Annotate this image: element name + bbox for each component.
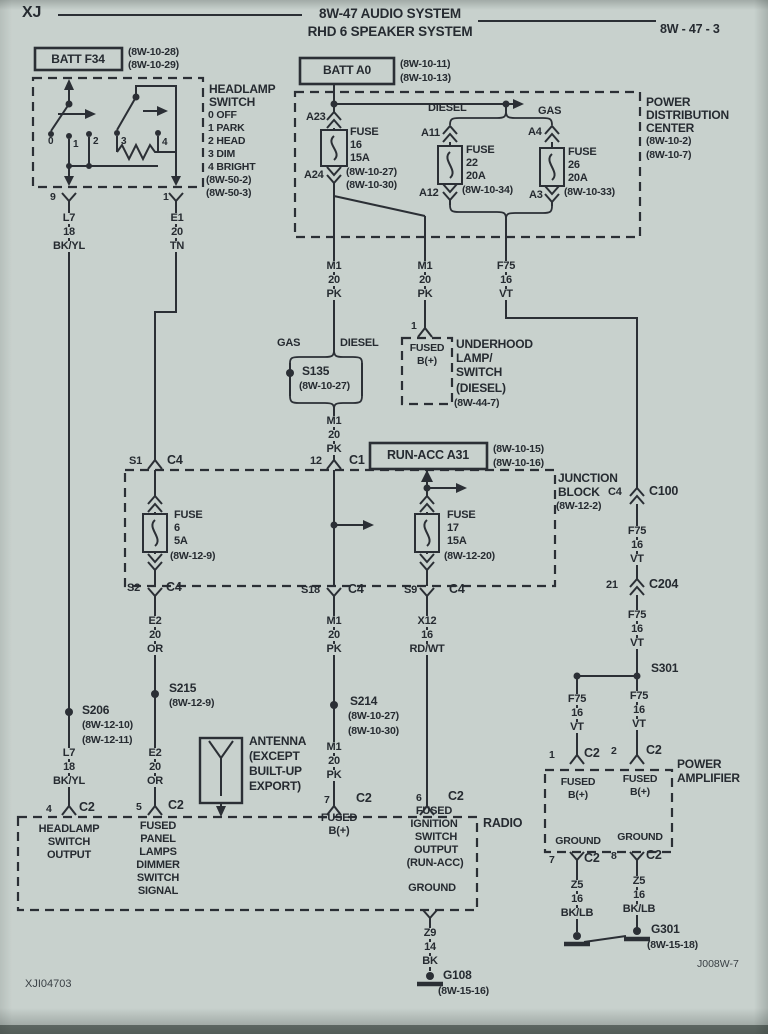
label-0: 0 [48,137,53,147]
label-1: 1 [549,750,555,761]
label-m1: M1 [324,416,345,427]
label-power: POWER [677,758,721,770]
label-20a: 20A [568,173,588,184]
label-s9: S9 [404,585,417,596]
label-8w-10-11: (8W-10-11) [400,59,450,70]
label-center: CENTER [646,122,694,134]
label-fused: FUSED [623,774,658,785]
label-b: B(+) [329,826,350,837]
label-vt: VT [629,719,649,730]
label-20: 20 [325,430,343,441]
label-vt: VT [567,722,587,733]
label-vt: VT [627,638,647,649]
label-fuse: FUSE [174,510,203,521]
junction-block-wires [155,469,457,586]
label-8w-15-16: (8W-15-16) [438,986,489,997]
label-pk: PK [324,289,345,300]
figure-id: XJI04703 [25,978,71,990]
label-16: 16 [628,624,646,635]
label-f75: F75 [625,610,649,621]
label-x12: X12 [415,616,440,627]
label-ignition: IGNITION [410,819,457,830]
label-c204: C204 [649,578,678,591]
label-output: OUTPUT [47,850,91,861]
label-output: OUTPUT [414,845,458,856]
label-s215: S215 [169,682,196,694]
label-16: 16 [630,705,648,716]
label-20: 20 [325,756,343,767]
label-9: 9 [50,192,56,203]
label-ground: GROUND [408,883,456,894]
label-16: 16 [350,140,362,151]
label-ground: GROUND [617,832,662,843]
label-20: 20 [416,275,434,286]
label-8w-10-13: (8W-10-13) [400,73,451,84]
label-8w-12-10: (8W-12-10) [82,720,133,731]
label-or: OR [144,644,166,655]
label-c1: C1 [349,454,365,467]
label-8w-10-30: (8W-10-30) [348,726,399,737]
label-c4: C4 [348,583,364,596]
label-8w-12-11: (8W-12-11) [82,735,132,746]
label-headlamp: HEADLAMP [209,83,275,95]
label-c4: C4 [449,583,465,596]
label-b: B(+) [630,787,650,798]
label-s1: S1 [129,456,142,467]
label-m1: M1 [324,742,345,753]
label-vt: VT [496,289,516,300]
label-panel: PANEL [140,834,175,845]
label-8w-10-15: (8W-10-15) [493,444,544,455]
label-junction: JUNCTION [558,472,618,484]
label-m1: M1 [324,261,345,272]
label-fuse: FUSE [447,510,476,521]
page-subtitle: RHD 6 SPEAKER SYSTEM [308,24,473,39]
label-s2: S2 [127,583,140,594]
label-20: 20 [146,630,164,641]
label-7: 7 [324,795,330,806]
label-0-off: 0 OFF [208,110,237,121]
label-c2: C2 [79,801,95,814]
label-a12: A12 [419,188,439,199]
label-pk: PK [324,444,345,455]
label-signal: SIGNAL [138,886,178,897]
label-26: 26 [568,160,580,171]
label-batt-f34: BATT F34 [51,53,105,65]
label-headlamp: HEADLAMP [39,824,100,835]
label-switch: SWITCH [209,96,255,108]
label-run-acc: (RUN-ACC) [407,858,464,869]
label-z5: Z5 [630,876,648,887]
label-pk: PK [415,289,436,300]
label-20: 20 [146,762,164,773]
label-except: (EXCEPT [249,750,300,762]
label-8w-10-7: (8W-10-7) [646,150,691,161]
label-3: 3 [121,137,126,147]
label-20: 20 [325,630,343,641]
label-2-head: 2 HEAD [208,136,245,147]
label-21: 21 [606,580,618,591]
label-gas: GAS [277,338,300,349]
label-8w-12-2: (8W-12-2) [556,501,601,512]
label-diesel: DIESEL [428,103,467,114]
label-dimmer: DIMMER [136,860,179,871]
label-switch: SWITCH [137,873,179,884]
label-built-up: BUILT-UP [249,765,302,777]
page-number: 8W - 47 - 3 [660,22,720,36]
label-8w-10-33: (8W-10-33) [564,187,615,198]
label-radio: RADIO [483,817,522,830]
label-bk: BK [419,956,441,967]
label-5a: 5A [174,536,188,547]
splice-s215-dot [151,690,159,698]
label-fuse: FUSE [568,147,597,158]
label-underhood: UNDERHOOD [456,338,533,350]
label-20: 20 [168,227,186,238]
label-c4: C4 [608,487,622,498]
label-pk: PK [324,644,345,655]
label-f75: F75 [627,691,651,702]
label-s214: S214 [350,695,377,707]
label-8w-10-27: (8W-10-27) [348,711,399,722]
label-7: 7 [549,855,555,866]
label-f75: F75 [565,694,589,705]
label-c2: C2 [646,744,662,757]
label-4-bright: 4 BRIGHT [208,162,255,173]
label-z5: Z5 [568,880,586,891]
label-8w-50-2: (8W-50-2) [206,175,251,186]
label-diesel: DIESEL [340,338,379,349]
label-switch: SWITCH [456,366,502,378]
label-8w-10-28: (8W-10-28) [128,47,179,58]
label-16: 16 [628,540,646,551]
label-20a: 20A [466,171,486,182]
label-switch: SWITCH [415,832,457,843]
label-fused: FUSED [561,777,596,788]
label-antenna: ANTENNA [249,735,306,747]
label-8w-10-34: (8W-10-34) [462,185,513,196]
splice-s301-dot [634,673,641,680]
label-lamp: LAMP/ [456,352,492,364]
label-gas: GAS [538,106,561,117]
splice-s135-dot [286,369,294,377]
label-16: 16 [418,630,436,641]
label-15a: 15A [350,153,370,164]
label-1: 1 [411,321,417,332]
label-s135: S135 [302,365,329,377]
label-c2: C2 [448,790,464,803]
label-a11: A11 [421,128,440,139]
label-16: 16 [568,894,586,905]
label-8w-15-18: (8W-15-18) [647,940,698,951]
label-4: 4 [46,804,52,815]
label-8w-10-29: (8W-10-29) [128,60,179,71]
label-22: 22 [466,158,478,169]
label-3-dim: 3 DIM [208,149,235,160]
label-c2: C2 [168,799,184,812]
label-8w-10-27: (8W-10-27) [346,167,397,178]
label-14: 14 [421,942,439,953]
label-8w-10-27: (8W-10-27) [299,381,350,392]
model-code: XJ [22,4,41,22]
label-fused: FUSED [410,343,445,354]
label-a3: A3 [529,190,543,201]
label-6: 6 [416,793,422,804]
label-f75: F75 [625,526,649,537]
label-e2: E2 [145,748,164,759]
label-diesel: (DIESEL) [456,382,506,394]
label-vt: VT [627,554,647,565]
label-8w-12-9: (8W-12-9) [169,698,214,709]
label-8w-12-9: (8W-12-9) [170,551,215,562]
label-export: EXPORT) [249,780,301,792]
label-c2: C2 [584,747,600,760]
label-8w-10-16: (8W-10-16) [493,458,544,469]
label-distribution: DISTRIBUTION [646,109,729,121]
label-8w-10-30: (8W-10-30) [346,180,397,191]
label-18: 18 [60,227,78,238]
label-rd-wt: RD/WT [406,644,447,655]
label-fused: FUSED [416,806,452,817]
label-b: B(+) [417,356,437,367]
label-or: OR [144,776,166,787]
label-2: 2 [611,746,617,757]
label-8w-44-7: (8W-44-7) [454,398,499,409]
label-fuse: FUSE [350,127,379,138]
splice-s214-dot [330,701,338,709]
label-c2: C2 [646,849,662,862]
label-l7: L7 [60,748,78,759]
label-c2: C2 [584,852,600,865]
label-8w-10-2: (8W-10-2) [646,136,691,147]
label-lamps: LAMPS [139,847,177,858]
label-fuse: FUSE [466,145,495,156]
label-12: 12 [310,456,322,467]
label-8: 8 [611,851,617,862]
label-s301: S301 [651,662,678,674]
drawing-id: J008W-7 [697,958,739,970]
label-amplifier: AMPLIFIER [677,772,740,784]
label-4: 4 [162,138,167,148]
label-18: 18 [60,762,78,773]
label-6: 6 [174,523,180,534]
photo-edge [0,1025,768,1034]
label-1-park: 1 PARK [208,123,245,134]
label-ground: GROUND [555,836,600,847]
label-16: 16 [497,275,515,286]
label-1: 1 [73,140,78,150]
label-16: 16 [630,890,648,901]
label-g301: G301 [651,923,680,935]
label-z9: Z9 [421,928,439,939]
label-fused: FUSED [140,821,176,832]
label-batt-a0: BATT A0 [323,64,371,76]
label-g108: G108 [443,969,472,981]
label-bk-lb: BK/LB [558,908,597,919]
label-bk-yl: BK/YL [50,241,88,252]
label-run-acc-a31: RUN-ACC A31 [387,449,469,462]
label-2: 2 [93,137,98,147]
label-switch: SWITCH [48,837,90,848]
label-a4: A4 [528,127,542,138]
junction-dots [48,94,641,981]
label-s18: S18 [301,585,320,596]
label-power: POWER [646,96,690,108]
label-f75: F75 [494,261,518,272]
label-l7: L7 [60,213,78,224]
label-e2: E2 [145,616,164,627]
label-m1: M1 [415,261,436,272]
service-manual-page: XJ 8W-47 AUDIO SYSTEM RHD 6 SPEAKER SYST… [0,0,768,1034]
label-a24: A24 [304,170,324,181]
label-c100: C100 [649,485,678,498]
label-1: 1 [163,192,169,203]
label-m1: M1 [324,616,345,627]
label-5: 5 [136,802,142,813]
label-bk-lb: BK/LB [620,904,659,915]
component-boxes [35,48,487,803]
label-17: 17 [447,523,459,534]
label-c4: C4 [166,581,182,594]
label-16: 16 [568,708,586,719]
label-8w-50-3: (8W-50-3) [206,188,251,199]
label-b: B(+) [568,790,588,801]
page-title: 8W-47 AUDIO SYSTEM [319,6,461,21]
label-c4: C4 [167,454,183,467]
label-20: 20 [325,275,343,286]
label-15a: 15A [447,536,467,547]
label-a23: A23 [306,112,326,123]
label-block: BLOCK [558,486,600,498]
label-tn: TN [167,241,187,252]
label-pk: PK [324,770,345,781]
label-fused: FUSED [321,813,357,824]
label-e1: E1 [167,213,186,224]
label-s206: S206 [82,704,109,716]
antenna-icon [209,741,233,809]
splice-s206-dot [65,708,73,716]
label-8w-12-20: (8W-12-20) [444,551,495,562]
label-bk-yl: BK/YL [50,776,88,787]
label-c2: C2 [356,792,372,805]
junction-block-box [125,470,555,586]
